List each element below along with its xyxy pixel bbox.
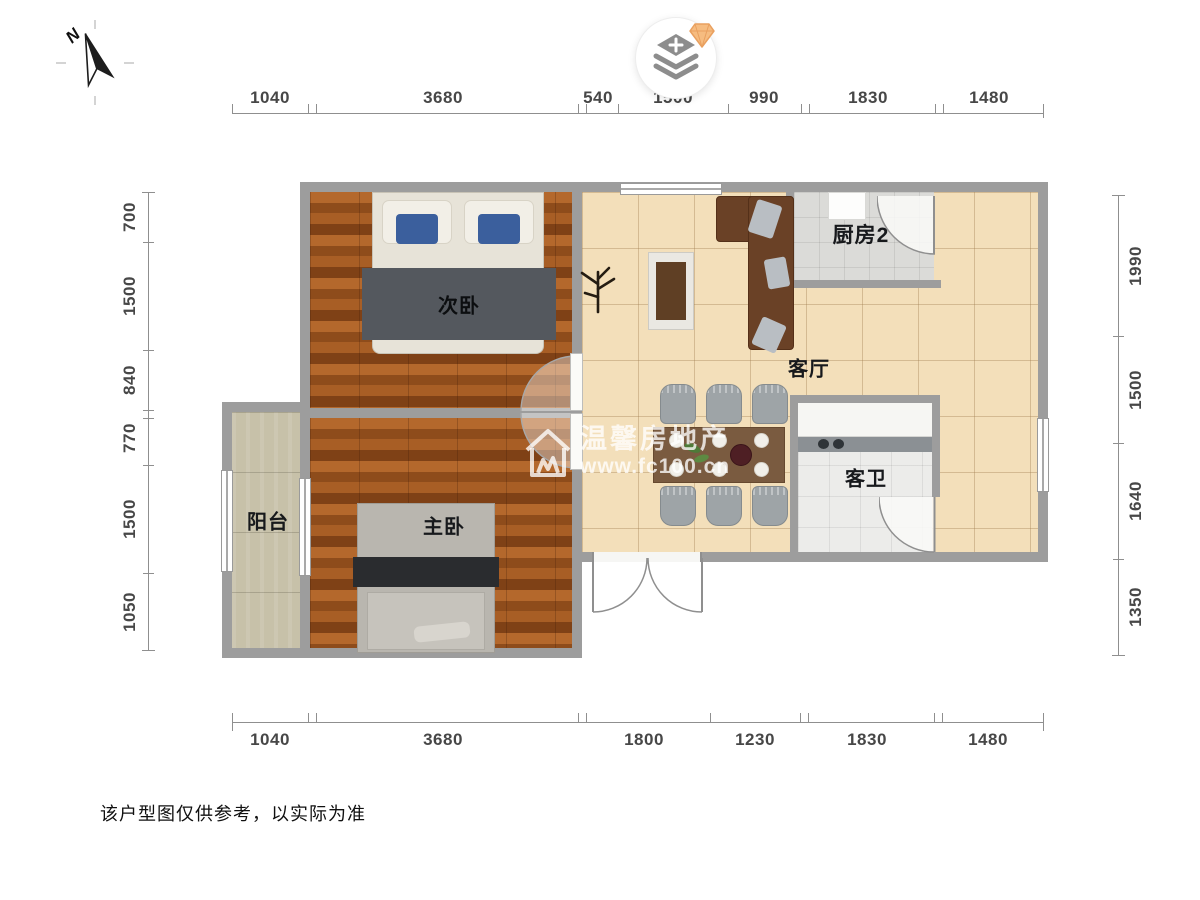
dim-label: 540 [583, 88, 613, 108]
compass-n-label: N [62, 24, 84, 47]
wall [786, 280, 941, 288]
dim-label: 1500 [120, 499, 140, 539]
tv-screen [656, 262, 686, 320]
dim-label: 1350 [1126, 587, 1146, 627]
dim-label: 3680 [423, 730, 463, 750]
dim-label: 1830 [848, 88, 888, 108]
dim-label: 700 [120, 202, 140, 232]
plate [754, 462, 769, 477]
dim-label: 770 [120, 423, 140, 453]
watermark-website: www.fc100.cn [580, 455, 730, 479]
dim-label: 1480 [968, 730, 1008, 750]
wall [1038, 182, 1048, 562]
dining-chair [752, 384, 788, 424]
cushion-blue [396, 214, 438, 244]
dim-label: 1040 [250, 730, 290, 750]
bathroom-cabinet [798, 403, 932, 437]
dim-label: 1990 [1126, 246, 1146, 286]
dim-label: 1500 [120, 276, 140, 316]
watermark: 温馨房地产 www.fc100.cn [524, 424, 730, 480]
floorplan-canvas: N 1040 3680 540 1500 990 1830 1480 [0, 0, 1200, 900]
sink-basin [818, 439, 829, 449]
blanket-dark [353, 557, 499, 587]
bathroom-door-arc [879, 497, 936, 554]
wall [790, 395, 940, 403]
dim-label: 1480 [969, 88, 1009, 108]
fridge [828, 192, 866, 220]
centerpiece-bowl [730, 444, 752, 466]
compass-north-arrow: N [52, 16, 138, 108]
dining-chair [706, 486, 742, 526]
dim-label: 1040 [250, 88, 290, 108]
dim-label: 1050 [120, 592, 140, 632]
cushion-blue [478, 214, 520, 244]
watermark-house-icon [524, 424, 572, 480]
dim-label: 1830 [847, 730, 887, 750]
dim-label: 1230 [735, 730, 775, 750]
window [620, 183, 722, 195]
sink-basin [833, 439, 844, 449]
wall [932, 395, 940, 497]
wall [790, 395, 798, 552]
dining-chair [752, 486, 788, 526]
plant-icon [578, 262, 618, 318]
entry-door-left-arc [592, 558, 649, 616]
window [1037, 418, 1049, 492]
wall [300, 182, 310, 658]
room-label-master-bedroom: 主卧 [423, 511, 465, 540]
dim-label: 990 [749, 88, 779, 108]
kitchen-door-arc [877, 194, 937, 256]
room-label-guest-bathroom: 客卫 [845, 463, 887, 492]
door-leaf [570, 353, 583, 411]
dim-label: 840 [120, 365, 140, 395]
dim-label: 1500 [1126, 370, 1146, 410]
room-label-secondary-bedroom: 次卧 [438, 290, 480, 319]
entry-door-right-arc [646, 558, 703, 616]
wall [222, 402, 310, 412]
dining-chair [660, 486, 696, 526]
room-label-balcony: 阳台 [247, 506, 289, 535]
window [221, 470, 233, 572]
watermark-brand: 温馨房地产 [580, 424, 730, 455]
disclaimer-text: 该户型图仅供参考，以实际为准 [100, 800, 366, 826]
plate [754, 433, 769, 448]
window [299, 478, 311, 576]
room-label-living-room: 客厅 [788, 353, 830, 382]
dim-label: 1800 [624, 730, 664, 750]
dim-label: 1640 [1126, 481, 1146, 521]
dim-label: 3680 [423, 88, 463, 108]
dining-chair [706, 384, 742, 424]
dining-chair [660, 384, 696, 424]
gem-icon [688, 20, 716, 50]
